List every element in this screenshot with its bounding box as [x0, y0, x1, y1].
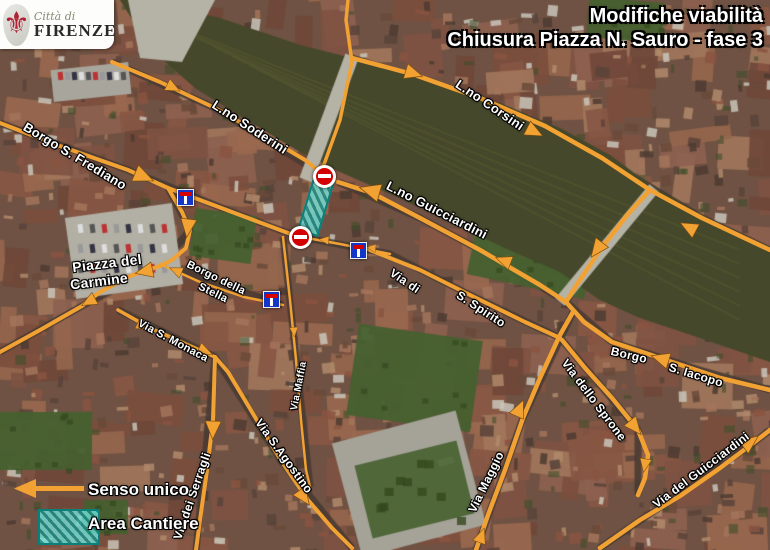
title-line-2: Chiusura Piazza N. Sauro - fase 3 [447, 28, 763, 52]
fleur-de-lis-icon: ⚜ [3, 9, 30, 39]
florence-shield: ⚜ [3, 4, 30, 46]
traffic-map: L.no SoderiniBorgo S. FredianoL.no Corsi… [0, 0, 770, 550]
city-logo: ⚜ Città di FIRENZE [0, 0, 114, 49]
map-title: Modifiche viabilità Chiusura Piazza N. S… [447, 4, 763, 52]
logo-city-name: FIRENZE [34, 22, 117, 39]
logo-city-prefix: Città di [34, 11, 117, 22]
one-way-arrows [78, 64, 763, 545]
title-line-1: Modifiche viabilità [447, 4, 763, 28]
route-overlay [0, 0, 770, 550]
one-way-routes [0, 0, 770, 550]
